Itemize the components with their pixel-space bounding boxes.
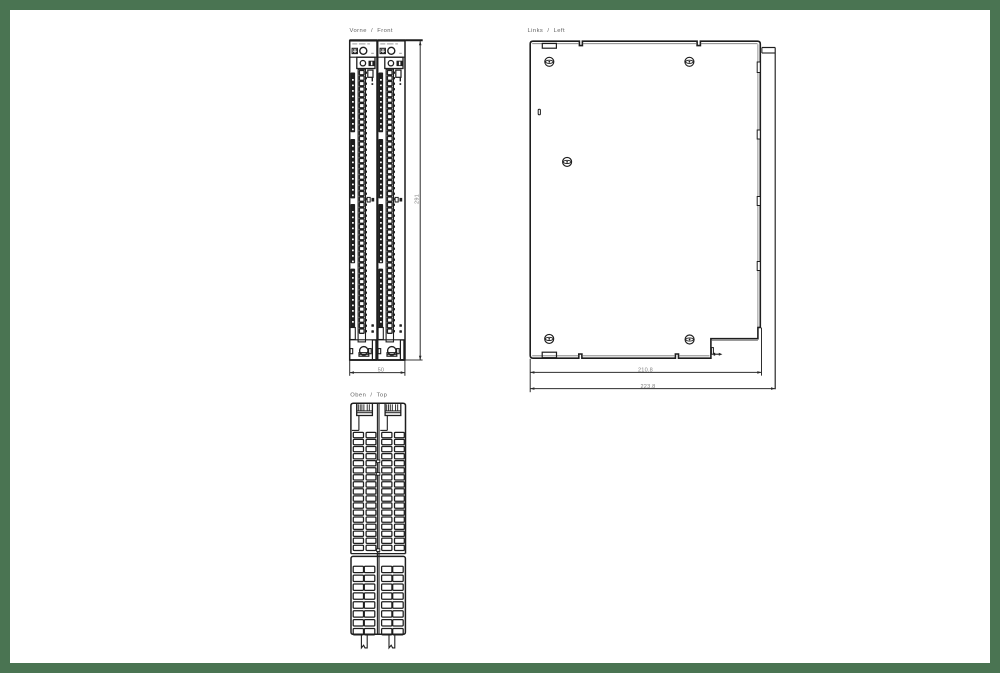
svg-text:210.8: 210.8 — [638, 368, 653, 374]
svg-text:291: 291 — [415, 194, 421, 204]
svg-text:Vorne / Front: Vorne / Front — [350, 28, 393, 34]
svg-text:Oben / Top: Oben / Top — [350, 393, 387, 399]
svg-text:50: 50 — [378, 367, 385, 373]
svg-text:Links / Left: Links / Left — [528, 28, 566, 34]
svg-text:223.8: 223.8 — [641, 384, 656, 390]
